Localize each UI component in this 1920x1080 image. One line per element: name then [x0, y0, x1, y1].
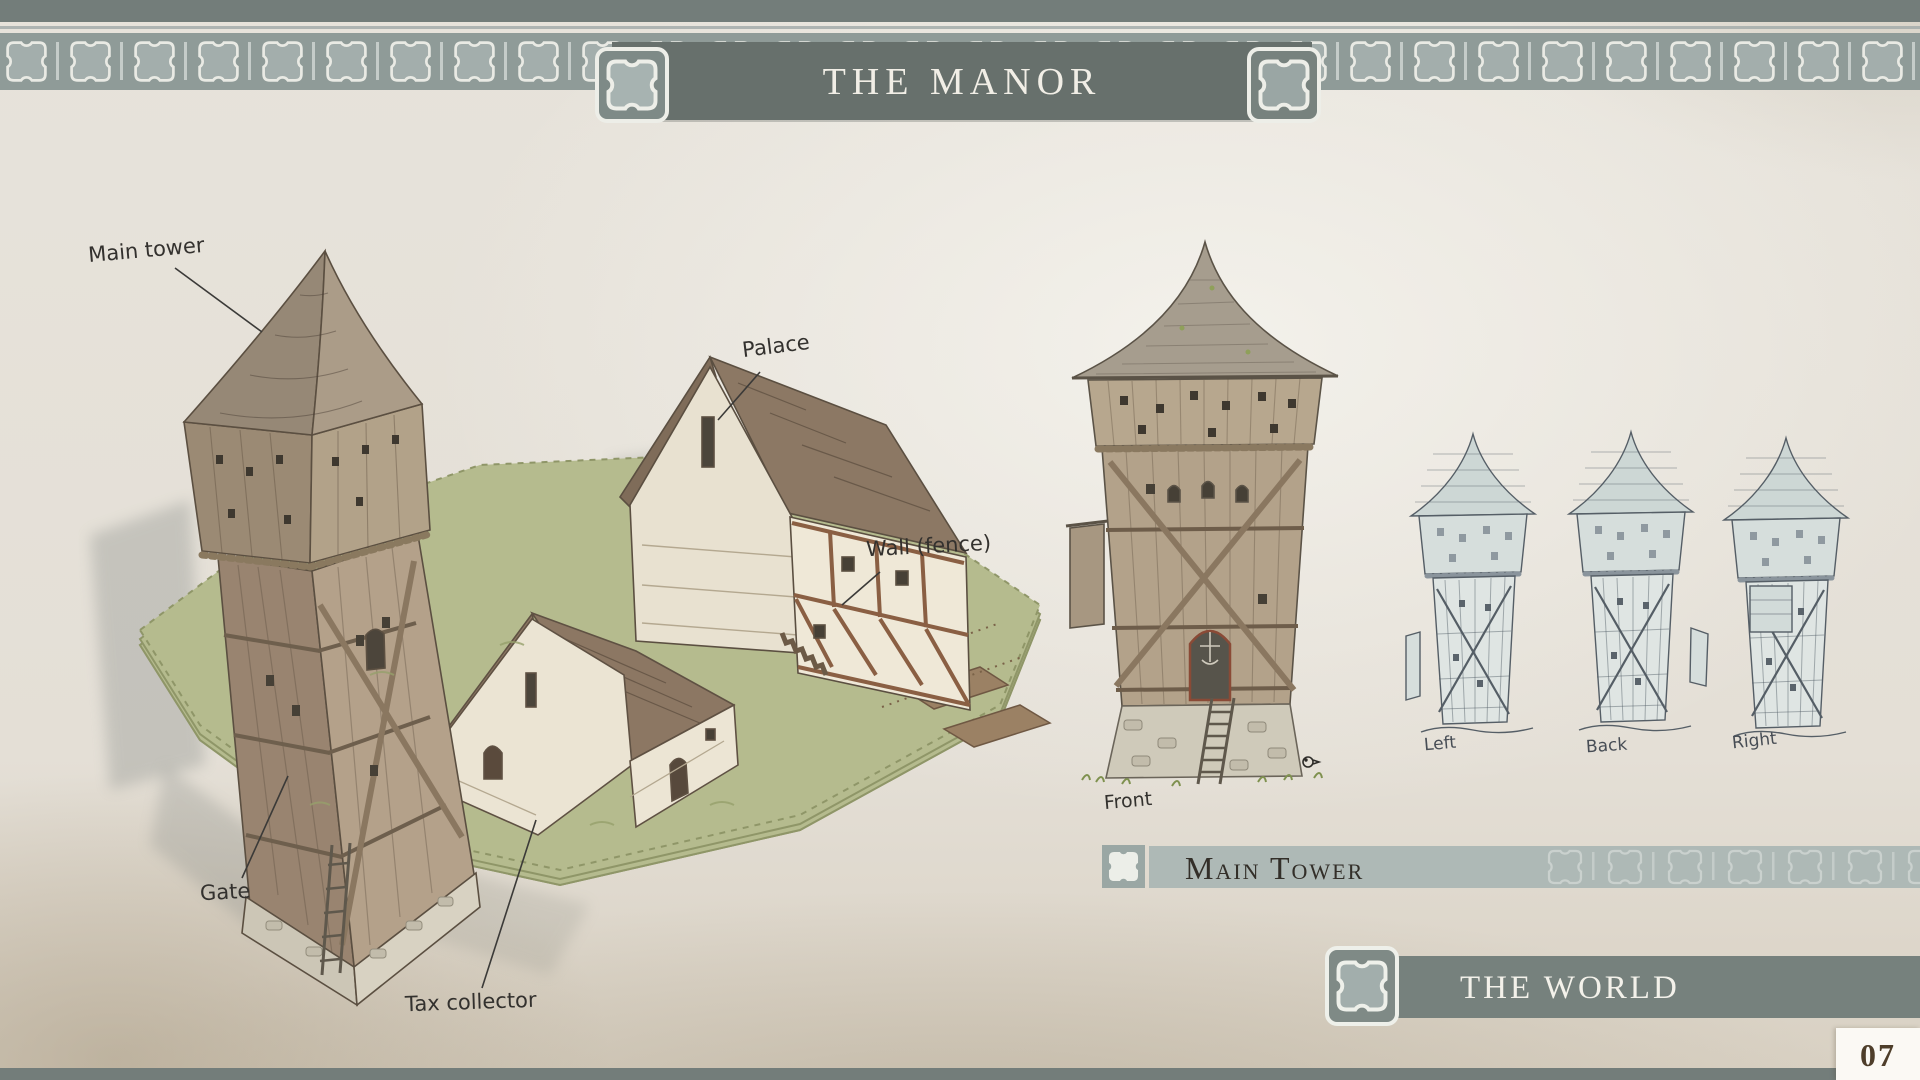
banner-left-ornament-icon [594, 46, 670, 124]
page-number: 07 [1836, 1028, 1920, 1080]
bottom-edge-strip [0, 1068, 1920, 1080]
main-tower-section-ornament-icon [1102, 845, 1145, 888]
page-title: THE MANOR [612, 42, 1312, 120]
label-left-view: Left [1423, 733, 1457, 756]
top-edge-strip [0, 0, 1920, 22]
banner-right-ornament-icon [1246, 46, 1322, 124]
artbook-page: THE MANOR [0, 0, 1920, 1080]
label-gate: Gate [199, 879, 250, 906]
main-tower-section-bar: Main Tower [1149, 846, 1920, 888]
page-number-card: 07 [1836, 1028, 1920, 1080]
title-banner: THE MANOR [612, 42, 1312, 120]
label-front-view: Front [1103, 788, 1153, 814]
label-back-view: Back [1585, 735, 1628, 758]
manor-illustration [70, 205, 1070, 1065]
top-rule-line [0, 26, 1920, 29]
the-world-section-bar: THE WORLD [1398, 956, 1920, 1018]
main-tower-front-drawing [1062, 228, 1348, 800]
the-world-ornament-icon [1324, 945, 1400, 1027]
main-tower-section-title: Main Tower [1185, 846, 1364, 888]
label-right-view: Right [1731, 729, 1778, 754]
tower-views-sketch [1398, 418, 1858, 748]
the-world-section-title: THE WORLD [1460, 956, 1680, 1020]
label-tax-collector: Tax collector [405, 988, 537, 1017]
